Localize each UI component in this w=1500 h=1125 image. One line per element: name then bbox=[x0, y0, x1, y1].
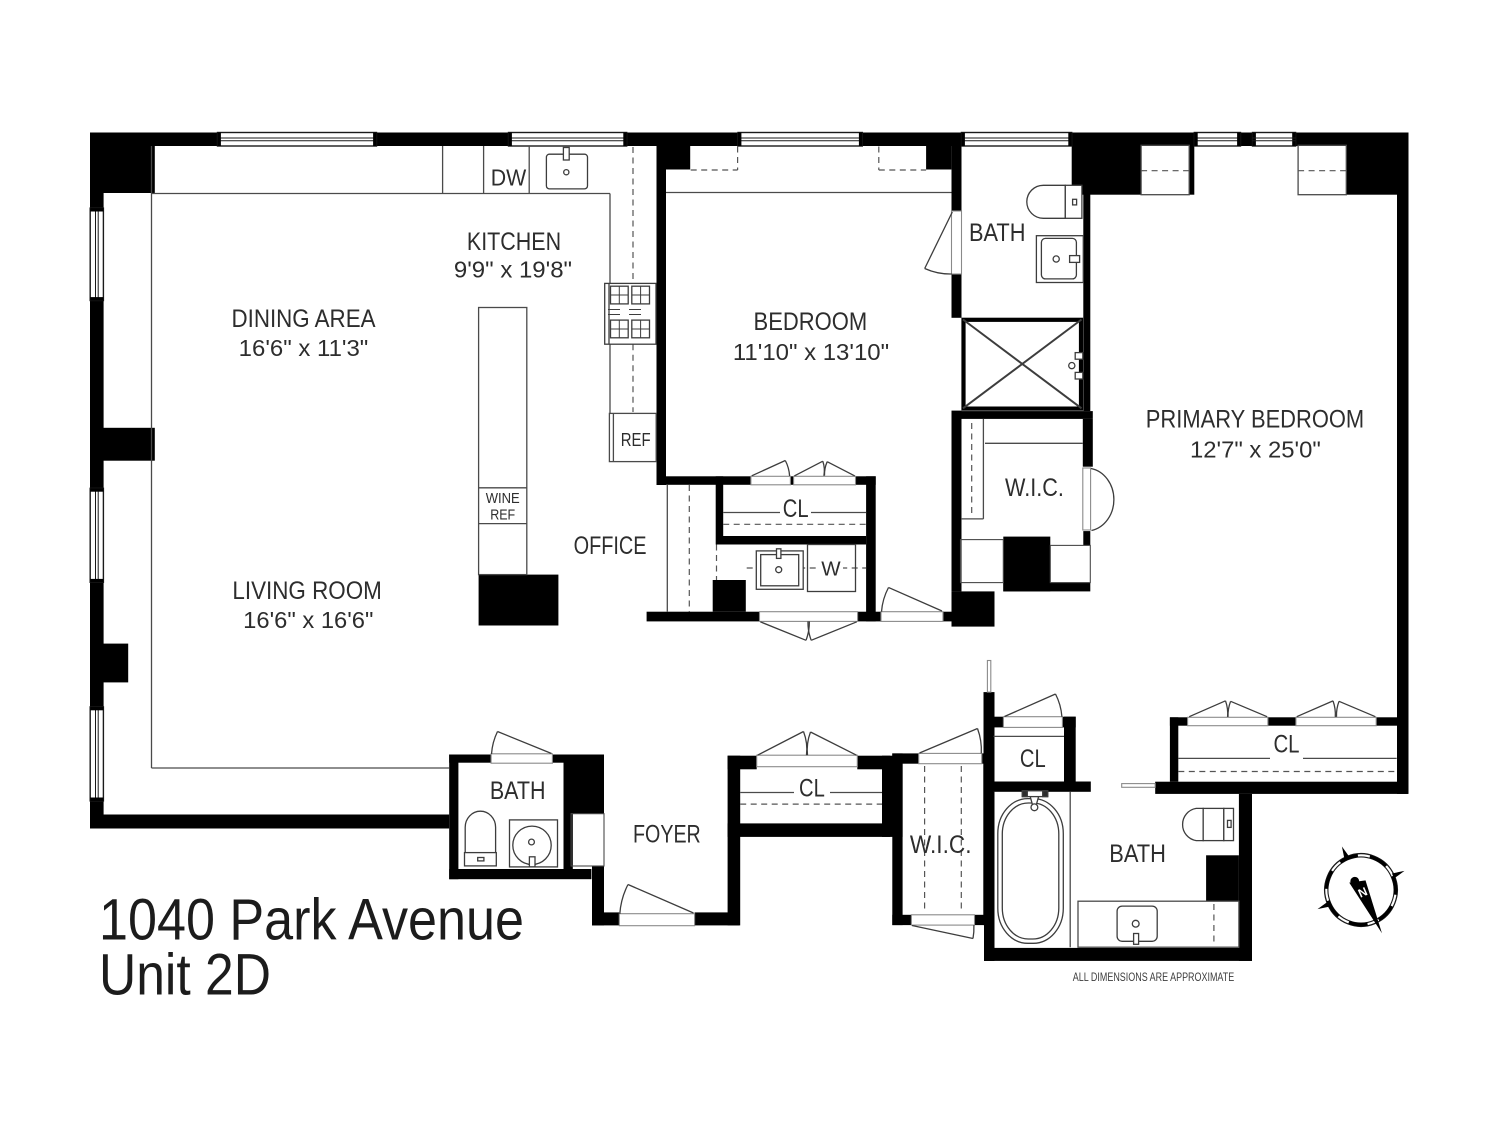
svg-text:W: W bbox=[821, 557, 841, 580]
svg-text:PRIMARY BEDROOM: PRIMARY BEDROOM bbox=[1146, 406, 1364, 434]
svg-text:REF: REF bbox=[621, 429, 651, 450]
svg-text:ALL DIMENSIONS ARE APPROXIMATE: ALL DIMENSIONS ARE APPROXIMATE bbox=[1073, 972, 1235, 984]
svg-text:DINING AREA: DINING AREA bbox=[232, 305, 376, 333]
svg-text:WINE: WINE bbox=[486, 491, 520, 507]
svg-text:12'7" x 25'0": 12'7" x 25'0" bbox=[1190, 437, 1321, 463]
svg-text:BATH: BATH bbox=[1109, 840, 1166, 868]
svg-text:9'9" x 19'8": 9'9" x 19'8" bbox=[454, 256, 572, 282]
svg-text:W.I.C.: W.I.C. bbox=[910, 831, 972, 859]
svg-text:REF: REF bbox=[490, 508, 515, 524]
svg-text:OFFICE: OFFICE bbox=[574, 532, 647, 560]
svg-text:KITCHEN: KITCHEN bbox=[467, 228, 561, 256]
svg-text:BATH: BATH bbox=[490, 777, 546, 805]
svg-text:CL: CL bbox=[1273, 731, 1299, 759]
svg-text:FOYER: FOYER bbox=[633, 821, 701, 849]
svg-text:16'6" x 11'3": 16'6" x 11'3" bbox=[239, 335, 369, 361]
svg-text:W.I.C.: W.I.C. bbox=[1005, 474, 1064, 502]
svg-text:CL: CL bbox=[1020, 745, 1046, 773]
svg-text:Unit 2D: Unit 2D bbox=[99, 942, 271, 1007]
svg-text:LIVING ROOM: LIVING ROOM bbox=[232, 577, 381, 605]
svg-text:11'10" x 13'10": 11'10" x 13'10" bbox=[733, 339, 889, 365]
svg-text:16'6" x 16'6": 16'6" x 16'6" bbox=[243, 607, 373, 633]
svg-text:CL: CL bbox=[783, 495, 809, 523]
svg-text:BATH: BATH bbox=[969, 219, 1026, 247]
svg-text:DW: DW bbox=[491, 164, 527, 190]
svg-text:CL: CL bbox=[799, 775, 825, 803]
svg-text:BEDROOM: BEDROOM bbox=[754, 308, 868, 336]
